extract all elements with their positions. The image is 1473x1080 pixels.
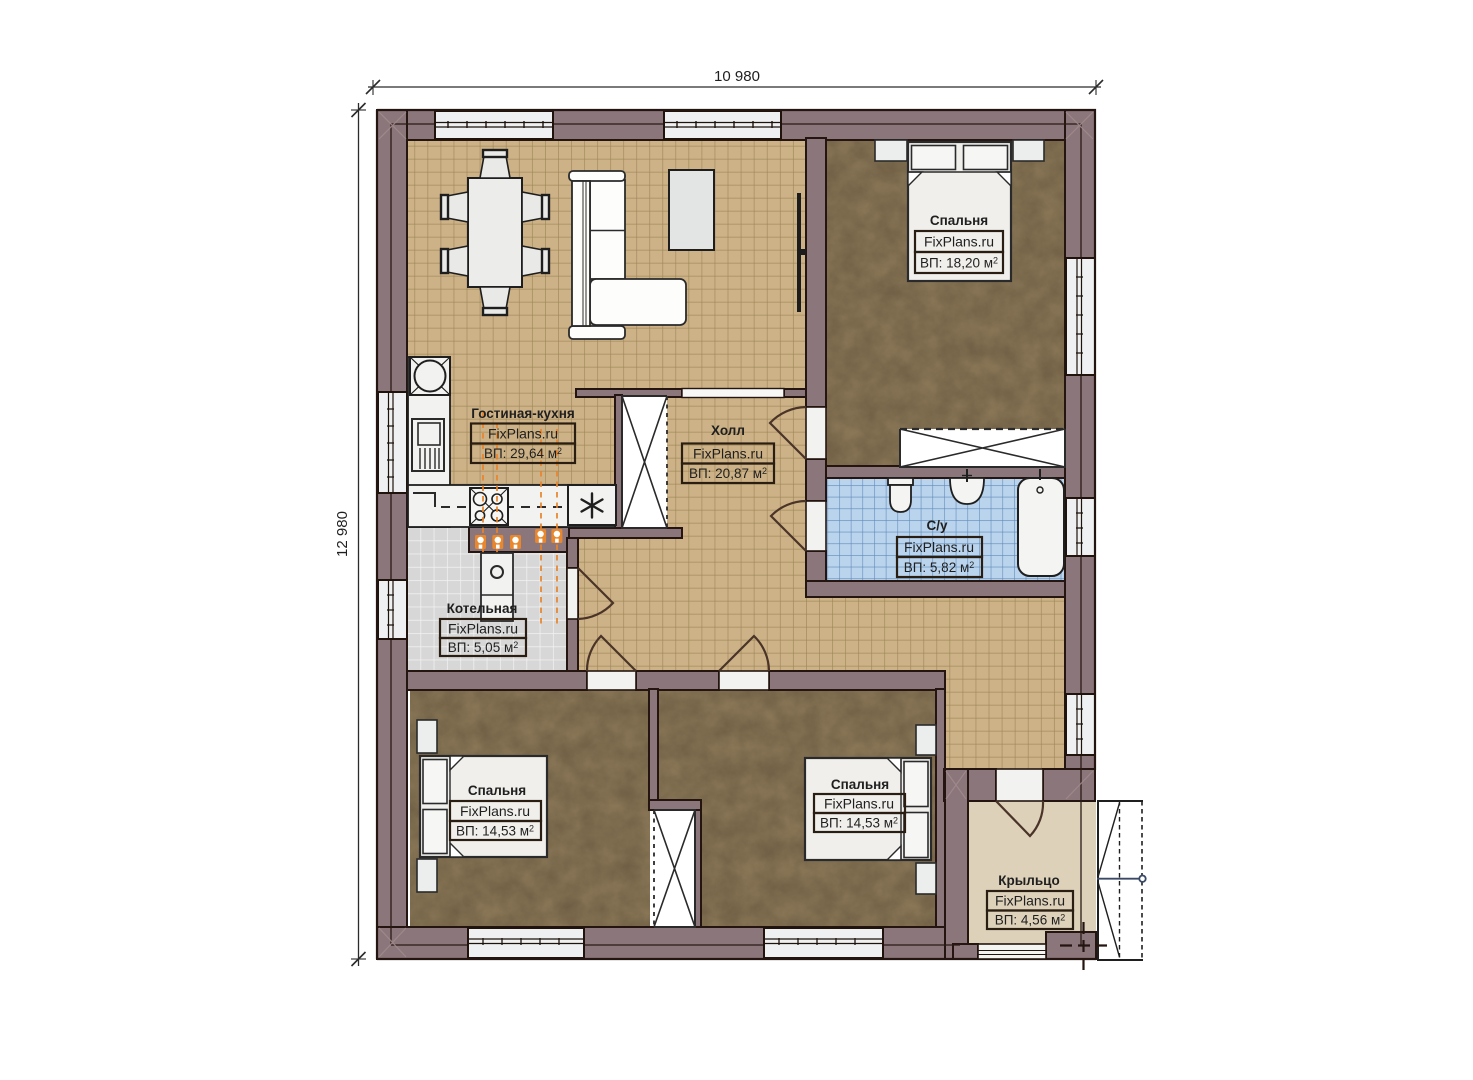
svg-text:Холл: Холл	[711, 423, 745, 438]
svg-text:ВП: 14,53 м2: ВП: 14,53 м2	[820, 816, 898, 831]
svg-text:FixPlans.ru: FixPlans.ru	[995, 893, 1065, 909]
svg-text:Спальня: Спальня	[831, 777, 889, 792]
svg-text:Гостиная-кухня: Гостиная-кухня	[471, 406, 574, 421]
svg-text:FixPlans.ru: FixPlans.ru	[693, 446, 763, 462]
svg-text:ВП: 20,87 м2: ВП: 20,87 м2	[689, 466, 767, 481]
svg-text:Крыльцо: Крыльцо	[998, 873, 1059, 888]
svg-text:ВП: 5,05 м2: ВП: 5,05 м2	[448, 640, 519, 655]
svg-text:Спальня: Спальня	[930, 213, 988, 228]
svg-text:FixPlans.ru: FixPlans.ru	[448, 621, 518, 637]
svg-text:Котельная: Котельная	[447, 601, 518, 616]
svg-text:С/у: С/у	[926, 518, 948, 533]
svg-text:FixPlans.ru: FixPlans.ru	[824, 796, 894, 812]
svg-text:ВП: 5,82 м2: ВП: 5,82 м2	[904, 560, 975, 575]
svg-text:ВП: 18,20 м2: ВП: 18,20 м2	[920, 256, 998, 271]
svg-text:ВП: 14,53 м2: ВП: 14,53 м2	[456, 824, 534, 839]
svg-text:FixPlans.ru: FixPlans.ru	[488, 426, 558, 442]
svg-text:FixPlans.ru: FixPlans.ru	[924, 234, 994, 250]
svg-text:FixPlans.ru: FixPlans.ru	[904, 539, 974, 555]
svg-text:Спальня: Спальня	[468, 783, 526, 798]
svg-text:10 980: 10 980	[714, 68, 760, 85]
svg-text:ВП: 29,64 м2: ВП: 29,64 м2	[484, 446, 562, 461]
svg-text:12 980: 12 980	[334, 511, 351, 557]
svg-text:FixPlans.ru: FixPlans.ru	[460, 803, 530, 819]
svg-text:ВП: 4,56 м2: ВП: 4,56 м2	[995, 913, 1066, 928]
